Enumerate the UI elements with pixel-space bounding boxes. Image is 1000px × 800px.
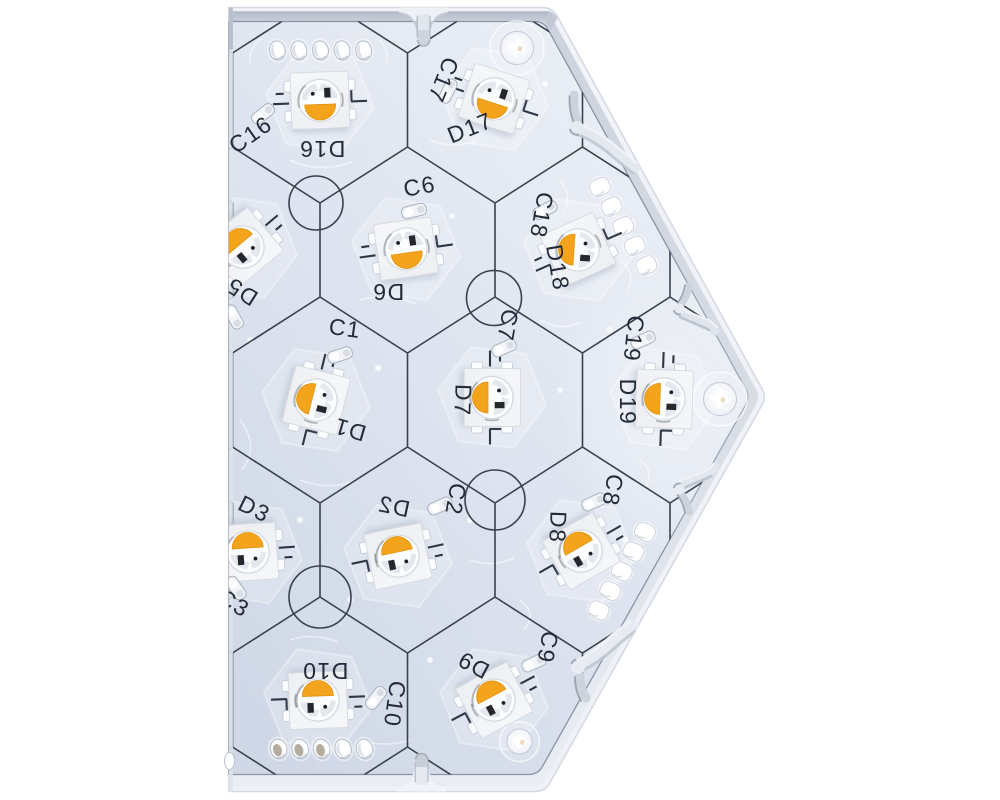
svg-text:C7: C7 bbox=[492, 307, 523, 343]
svg-text:C2: C2 bbox=[440, 481, 471, 517]
svg-text:C6: C6 bbox=[401, 171, 437, 202]
svg-text:D16: D16 bbox=[299, 136, 346, 162]
svg-text:D6: D6 bbox=[372, 279, 404, 305]
svg-text:C19: C19 bbox=[619, 314, 650, 363]
svg-text:C9: C9 bbox=[532, 629, 563, 665]
svg-text:C1: C1 bbox=[327, 313, 363, 343]
svg-text:D19: D19 bbox=[615, 379, 641, 426]
svg-text:D7: D7 bbox=[449, 384, 476, 417]
svg-text:D8: D8 bbox=[544, 511, 571, 544]
svg-text:C8: C8 bbox=[597, 472, 628, 508]
svg-text:D10: D10 bbox=[302, 658, 349, 684]
